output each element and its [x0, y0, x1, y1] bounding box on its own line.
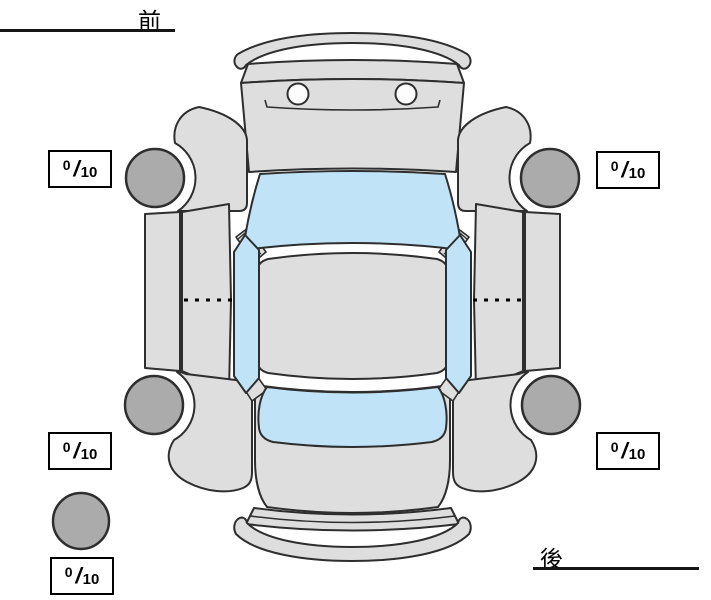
score-max: 10 — [83, 572, 100, 587]
score-separator: / — [621, 440, 627, 462]
roof — [257, 253, 448, 379]
tire-rear-right[interactable] — [522, 376, 580, 434]
score-value: 0 — [63, 440, 71, 454]
tire-score-box-spare[interactable]: 0/10 — [50, 557, 114, 595]
front-label-underline — [0, 29, 175, 32]
tire-score-box-front-right[interactable]: 0/10 — [596, 151, 660, 189]
left-outer-door-panel — [145, 212, 180, 371]
front-right-fender — [458, 107, 531, 211]
score-value: 0 — [63, 158, 71, 172]
car-top-view — [0, 0, 711, 600]
rear-right-fender — [453, 372, 536, 492]
score-max: 10 — [81, 447, 98, 462]
tire-score-box-front-left[interactable]: 0/10 — [48, 150, 112, 188]
left-side-window — [234, 235, 259, 393]
washer-nozzle-left — [288, 84, 309, 105]
front-left-fender — [174, 107, 247, 211]
washer-nozzle-right — [396, 84, 417, 105]
score-separator: / — [73, 440, 79, 462]
tire-score-box-rear-left[interactable]: 0/10 — [48, 432, 112, 470]
rear-label-underline — [533, 567, 699, 570]
score-value: 0 — [65, 565, 73, 579]
car-condition-diagram: 前 後 0/10 0/10 0/10 0/10 0/10 — [0, 0, 711, 600]
tire-rear-left[interactable] — [125, 376, 183, 434]
tire-front-right[interactable] — [521, 149, 579, 207]
rear-window — [258, 387, 446, 447]
right-outer-door-panel — [525, 212, 560, 371]
car-body — [145, 33, 560, 561]
score-max: 10 — [629, 166, 646, 181]
score-separator: / — [73, 158, 79, 180]
right-inner-door-panel — [474, 204, 523, 391]
rear-left-fender — [169, 372, 252, 492]
right-side-window — [446, 235, 471, 393]
score-separator: / — [621, 159, 627, 181]
score-max: 10 — [81, 165, 98, 180]
windshield — [243, 171, 462, 250]
tire-score-box-rear-right[interactable]: 0/10 — [596, 432, 660, 470]
score-value: 0 — [611, 159, 619, 173]
tire-front-left[interactable] — [126, 149, 184, 207]
score-separator: / — [75, 565, 81, 587]
score-max: 10 — [629, 447, 646, 462]
hood — [241, 79, 464, 172]
score-value: 0 — [611, 440, 619, 454]
left-inner-door-panel — [182, 204, 231, 391]
tire-spare[interactable] — [53, 493, 109, 549]
